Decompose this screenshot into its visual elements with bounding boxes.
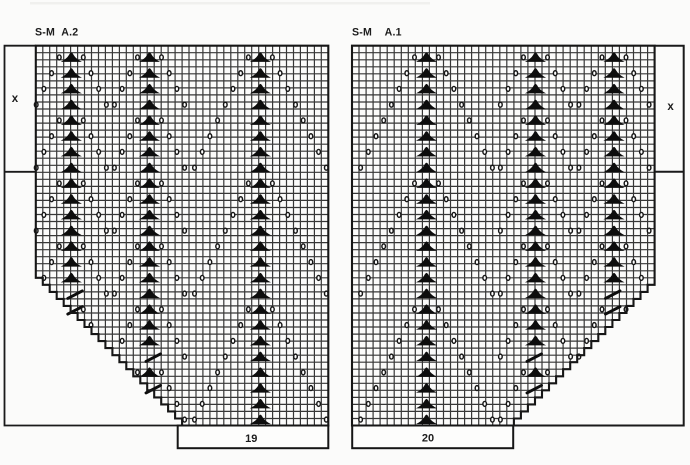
svg-text:20: 20 (422, 433, 434, 445)
svg-text:x: x (667, 101, 674, 113)
svg-text:S-M A.1: S-M A.1 (352, 27, 402, 39)
svg-text:S-M A.2: S-M A.2 (35, 27, 78, 39)
svg-text:19: 19 (245, 433, 257, 445)
svg-text:x: x (12, 93, 19, 105)
